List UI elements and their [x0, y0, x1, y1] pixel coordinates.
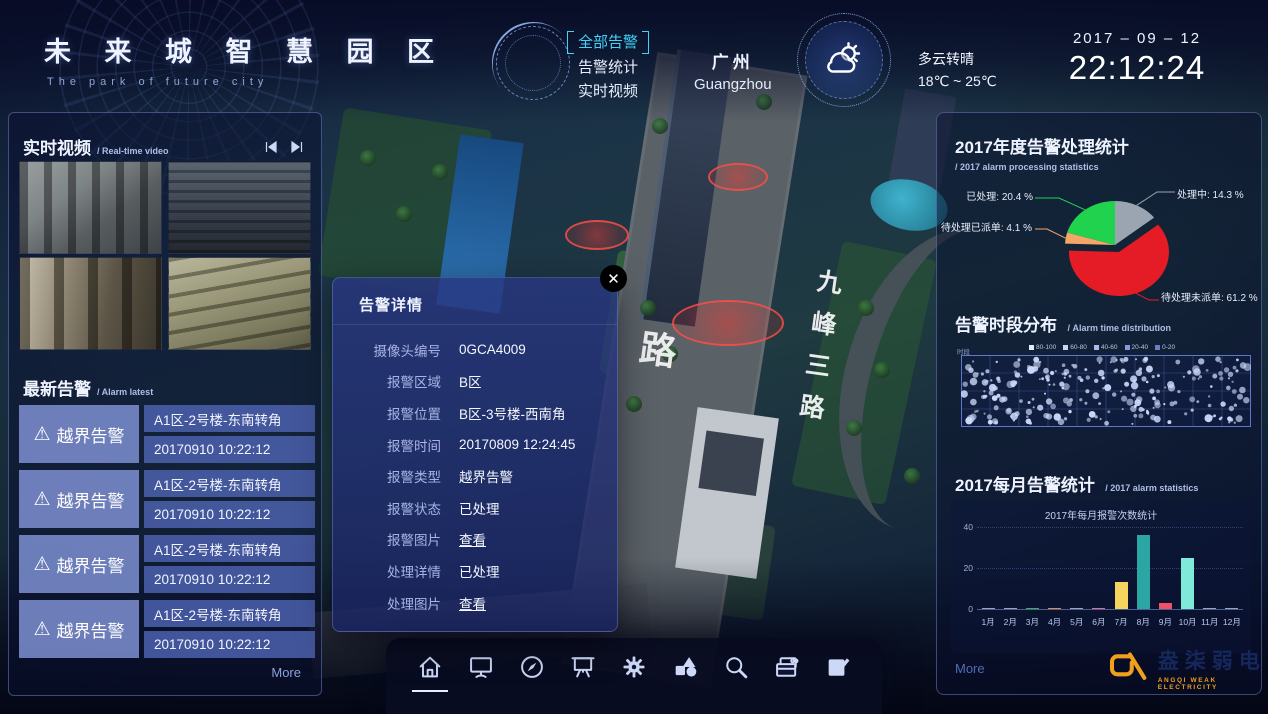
bar-section-subtitle: / 2017 alarm statistics [1105, 483, 1198, 493]
legend-item: 40-60 [1094, 344, 1118, 351]
nav-item-alarm-stats[interactable]: 告警统计 [578, 59, 647, 76]
field-value: 0GCA4009 [459, 342, 526, 357]
bar-gridline [977, 609, 1243, 610]
scatter-point [1189, 396, 1195, 402]
scatter-point [1064, 417, 1067, 420]
dashboard: 九峰三路 路 未 来 城 智 慧 园 区 The park of future … [0, 0, 1268, 714]
bar-xtick-label: 4月 [1044, 616, 1066, 628]
map-tree [626, 396, 642, 412]
scatter-point [1164, 386, 1166, 388]
scatter-point [999, 397, 1005, 403]
pie-label-pending-dispatched: 待处理已派单: 4.1 % [937, 219, 1032, 234]
divider [333, 324, 617, 325]
bar-section-title: 2017每月告警统计 [955, 476, 1095, 495]
scatter-point [1104, 421, 1109, 426]
projection-screen-icon[interactable] [568, 652, 598, 682]
alarm-list-item[interactable]: ⚠越界告警 A1区-2号楼-东南转角 20170910 10:22:12 [19, 470, 315, 528]
scatter-point [1130, 375, 1137, 382]
bar-xtick-label: 3月 [1021, 616, 1043, 628]
scatter-point [1094, 379, 1098, 383]
weather-text: 多云转晴 18℃ ~ 25℃ [918, 48, 997, 92]
scatter-point [1136, 396, 1142, 402]
city-block: 广州 Guangzhou [694, 48, 772, 93]
alarm-section-title: 最新告警 [23, 375, 91, 400]
bar [1225, 608, 1238, 609]
scatter-point [1037, 405, 1043, 411]
scatter-point [996, 361, 998, 363]
modal-field-row: 报警位置B区-3号楼-西南角 [333, 397, 617, 429]
scatter-point [1097, 356, 1103, 362]
field-label: 报警位置 [333, 403, 441, 423]
field-label: 报警状态 [333, 498, 441, 518]
scatter-point [1032, 398, 1035, 401]
modal-field-row: 报警状态已处理 [333, 492, 617, 524]
scatter-point [1175, 360, 1180, 365]
scatter-point [965, 417, 972, 424]
field-value: 已处理 [459, 498, 500, 518]
modal-title: 告警详情 [359, 294, 423, 315]
scatter-point [1234, 422, 1236, 424]
scatter-point [968, 368, 973, 373]
map-tree [874, 362, 890, 378]
scatter-point [1111, 356, 1118, 363]
alarm-time: 20170910 10:22:12 [144, 566, 315, 593]
scatter-point [1049, 384, 1051, 386]
scatter-point [1210, 385, 1213, 388]
legend-item: 60-80 [1063, 344, 1087, 351]
scatter-point [1115, 369, 1118, 372]
alarm-location: A1区-2号楼-东南转角 [144, 405, 315, 432]
right-panel-more-link[interactable]: More [955, 661, 985, 676]
alarm-location: A1区-2号楼-东南转角 [144, 470, 315, 497]
map-tree [640, 300, 656, 316]
scatter-point [1138, 413, 1143, 418]
monitor-icon[interactable] [466, 652, 496, 682]
modal-field-row: 报警类型越界告警 [333, 460, 617, 492]
scatter-point [1146, 366, 1153, 373]
bar-ytick-label: 0 [955, 604, 973, 614]
page-subtitle: The park of future city [44, 76, 447, 88]
video-section-title: 实时视频 [23, 134, 91, 159]
scatter-point [1067, 401, 1072, 406]
nav-item-all-alarms[interactable]: 全部告警 [569, 33, 647, 52]
scatter-point [1135, 358, 1137, 360]
alarm-section-header: 最新告警 / Alarm latest [23, 375, 153, 400]
main-nav: 全部告警 告警统计 实时视频 [578, 33, 647, 100]
map-tree [396, 206, 412, 222]
logo-text-cn: 盎柒弱电 [1158, 645, 1268, 675]
scatter-point [1220, 401, 1225, 406]
scatter-point [1236, 415, 1243, 422]
skip-previous-icon[interactable] [263, 140, 279, 154]
pie-leader-line [1035, 198, 1085, 210]
scatter-point [1121, 396, 1127, 402]
scatter-point [1041, 377, 1044, 380]
modal-fields: 摄像头编号0GCA4009报警区域B区报警位置B区-3号楼-西南角报警时间201… [333, 334, 617, 618]
bar [982, 608, 995, 609]
scatter-point [1170, 401, 1175, 406]
scatter-point [1013, 361, 1020, 368]
field-label: 报警时间 [333, 435, 441, 455]
scatter-point [983, 390, 985, 392]
scatter-point [1150, 415, 1156, 421]
page-title: 未 来 城 智 慧 园 区 [44, 30, 447, 69]
video-thumbnail[interactable] [168, 161, 311, 254]
modal-field-row: 报警时间20170809 12:24:45 [333, 429, 617, 461]
scatter-point [976, 410, 978, 412]
bar-xtick-label: 2月 [999, 616, 1021, 628]
legend-swatch-icon [1094, 345, 1099, 350]
alarm-list-item[interactable]: ⚠越界告警 A1区-2号楼-东南转角 20170910 10:22:12 [19, 535, 315, 593]
modal-field-row: 摄像头编号0GCA4009 [333, 334, 617, 366]
wallet-icon[interactable] [772, 652, 802, 682]
alert-zone[interactable] [565, 220, 629, 250]
city-name-en: Guangzhou [694, 76, 772, 93]
bar-xtick-label: 8月 [1132, 616, 1154, 628]
legend-swatch-icon [1029, 345, 1034, 350]
scatter-point [1131, 382, 1138, 389]
alarm-time: 20170910 10:22:12 [144, 436, 315, 463]
bar-gridline [977, 568, 1243, 569]
field-value: 越界告警 [459, 466, 513, 486]
video-thumbnail[interactable] [168, 257, 311, 350]
alarm-type-label: 越界告警 [57, 487, 125, 512]
scatter-point [1010, 413, 1018, 421]
scatter-point [1196, 400, 1199, 403]
scatter-point [1215, 356, 1221, 362]
scatter-point [1152, 397, 1156, 401]
scatter-point [1039, 378, 1041, 380]
scatter-point [1136, 370, 1142, 376]
pie-section-subtitle: / 2017 alarm processing statistics [955, 162, 1129, 172]
scatter-point [1079, 398, 1082, 401]
pie-section-header: 2017年度告警处理统计 / 2017 alarm processing sta… [955, 133, 1129, 172]
video-section-subtitle: / Real-time video [97, 146, 169, 156]
scatter-point [1019, 399, 1023, 403]
search-icon[interactable] [721, 652, 751, 682]
scatter-point [1233, 366, 1237, 370]
pie-leader-line [1035, 229, 1066, 238]
scatter-point [1184, 412, 1187, 415]
scatter-point [1095, 415, 1098, 418]
scatter-section-subtitle: / Alarm time distribution [1067, 323, 1171, 333]
pie-label-processed: 已处理: 20.4 % [947, 188, 1033, 203]
scatter-point [1139, 407, 1144, 412]
scatter-point [1092, 392, 1099, 399]
nav-item-realtime-video[interactable]: 实时视频 [578, 83, 647, 100]
bar-xtick-label: 5月 [1066, 616, 1088, 628]
home-icon[interactable] [415, 652, 445, 682]
scatter-point [1010, 380, 1016, 386]
scatter-point [1187, 370, 1191, 374]
right-panel: 2017年度告警处理统计 / 2017 alarm processing sta… [936, 112, 1262, 695]
alarm-list-item[interactable]: ⚠越界告警 A1区-2号楼-东南转角 20170910 10:22:12 [19, 600, 315, 658]
map-tree [360, 150, 376, 166]
scatter-point [1033, 366, 1039, 372]
scatter-point [1192, 365, 1200, 373]
bar [1181, 558, 1194, 609]
field-label: 报警类型 [333, 466, 441, 486]
pie-label-pending-undispatched: 待处理未派单: 61.2 % [1161, 289, 1258, 304]
edit-icon[interactable] [823, 652, 853, 682]
scatter-point [1220, 361, 1222, 363]
scatter-point [1104, 384, 1111, 391]
alarm-type-label: 越界告警 [57, 422, 125, 447]
scatter-point [1198, 378, 1200, 380]
scatter-point [990, 379, 992, 381]
scatter-point [1228, 421, 1230, 423]
scatter-point [1062, 363, 1066, 367]
gear-icon[interactable] [619, 652, 649, 682]
scatter-point [1063, 383, 1070, 390]
bar [1026, 608, 1039, 609]
scatter-point [1243, 397, 1249, 403]
scatter-point [1239, 387, 1246, 394]
scatter-point [1133, 414, 1137, 418]
scatter-point [1220, 417, 1222, 419]
video-thumbnail[interactable] [19, 257, 162, 350]
scatter-point [1213, 414, 1216, 417]
bar-xtick-label: 11月 [1199, 616, 1221, 628]
alarm-type-label: 越界告警 [57, 617, 125, 642]
scatter-chart [961, 355, 1251, 427]
scatter-point [1228, 377, 1230, 379]
scatter-point [1098, 402, 1101, 405]
skip-next-icon[interactable] [289, 140, 305, 154]
bar-xtick-label: 7月 [1110, 616, 1132, 628]
legend-item: 80-100 [1029, 344, 1056, 351]
bar [1159, 603, 1172, 609]
scatter-point [1167, 420, 1171, 424]
bottom-toolbar [386, 638, 882, 714]
field-value: 已处理 [459, 561, 500, 581]
scatter-point [1124, 382, 1129, 387]
bar-xtick-label: 12月 [1221, 616, 1243, 628]
alarm-time: 20170910 10:22:12 [144, 501, 315, 528]
scatter-point [1163, 403, 1165, 405]
weather-temp: 18℃ ~ 25℃ [918, 70, 997, 92]
scatter-point [1084, 368, 1087, 371]
legend-item: 0-20 [1155, 344, 1175, 351]
scatter-point [1044, 393, 1046, 395]
scatter-point [1177, 390, 1180, 393]
warning-icon: ⚠ [33, 425, 50, 444]
scatter-point [1127, 399, 1134, 406]
scatter-point [1046, 414, 1052, 420]
scatter-point [985, 369, 989, 373]
scatter-point [1014, 370, 1017, 373]
scatter-point [1146, 410, 1148, 412]
scatter-point [1149, 389, 1154, 394]
legend-swatch-icon [1155, 345, 1160, 350]
scatter-point [981, 395, 985, 399]
scatter-point [1131, 423, 1133, 425]
scatter-point [1157, 374, 1160, 377]
scatter-point [1086, 375, 1090, 379]
map-tree [652, 118, 668, 134]
scatter-point [1192, 377, 1196, 381]
bar-xtick-label: 1月 [977, 616, 999, 628]
date-label: 2017 – 09 – 12 [1052, 30, 1222, 47]
scatter-point [1183, 376, 1185, 378]
scatter-point [1089, 411, 1096, 418]
alarm-list-item[interactable]: ⚠越界告警 A1区-2号楼-东南转角 20170910 10:22:12 [19, 405, 315, 463]
scatter-point [1069, 375, 1072, 378]
scatter-point [972, 360, 974, 362]
scatter-point [1146, 381, 1149, 384]
pie-leader-line [1135, 293, 1159, 300]
close-icon[interactable]: ✕ [600, 265, 627, 292]
bar-xtick-label: 10月 [1177, 616, 1199, 628]
warning-icon: ⚠ [33, 555, 50, 574]
logo-text-en: ANGQI WEAK ELECTRICITY [1158, 677, 1268, 691]
angqi-logo-icon [1103, 646, 1150, 690]
field-value: 20170809 12:24:45 [459, 437, 575, 452]
scatter-point [1122, 408, 1124, 410]
warning-icon: ⚠ [33, 490, 50, 509]
footer-logo: 盎柒弱电 ANGQI WEAK ELECTRICITY [1103, 645, 1268, 691]
scatter-point [1227, 416, 1232, 421]
scatter-point [1237, 394, 1243, 400]
scatter-point [1208, 395, 1210, 397]
alarm-type-label: 越界告警 [57, 552, 125, 577]
scatter-point [1057, 415, 1059, 417]
scatter-point [1226, 386, 1231, 391]
scatter-point [1152, 375, 1155, 378]
pie-leader-line [1137, 192, 1175, 205]
scatter-point [1026, 419, 1032, 425]
scatter-point [1198, 358, 1204, 364]
field-label: 处理图片 [333, 593, 441, 613]
scatter-point [1064, 372, 1067, 375]
bar [1137, 535, 1150, 609]
scatter-point [977, 373, 979, 375]
scatter-point [1224, 367, 1229, 372]
scatter-point [1005, 408, 1011, 414]
scatter-point [1206, 369, 1209, 372]
alarm-list: ⚠越界告警 A1区-2号楼-东南转角 20170910 10:22:12 ⚠越界… [19, 405, 315, 658]
shapes-icon[interactable] [670, 652, 700, 682]
map-tree [432, 164, 448, 180]
scatter-point [1084, 402, 1087, 405]
bar [1203, 608, 1216, 609]
alarm-time: 20170910 10:22:12 [144, 631, 315, 658]
scatter-point [994, 405, 999, 410]
warning-icon: ⚠ [33, 620, 50, 639]
scatter-point [1228, 372, 1233, 377]
scatter-point [1141, 376, 1146, 381]
bar [1048, 608, 1061, 609]
scatter-point [982, 379, 989, 386]
scatter-point [1107, 410, 1110, 413]
scatter-point [1236, 359, 1239, 362]
field-value: B区-3号楼-西南角 [459, 403, 566, 423]
scatter-point [1154, 402, 1160, 408]
field-label: 处理详情 [333, 561, 441, 581]
scatter-point [963, 382, 968, 387]
video-thumbnail[interactable] [19, 161, 162, 254]
weather-condition: 多云转晴 [918, 48, 997, 70]
bar-ytick-label: 40 [955, 522, 973, 532]
time-label: 22:12:24 [1052, 49, 1222, 87]
compass-icon[interactable] [517, 652, 547, 682]
bar-ytick-label: 20 [955, 563, 973, 573]
pie-label-processing: 处理中: 14.3 % [1177, 186, 1244, 201]
scatter-point [1050, 371, 1054, 375]
scatter-point [1120, 390, 1122, 392]
scatter-point [1112, 392, 1116, 396]
scatter-point [1020, 376, 1022, 378]
alert-zone[interactable] [672, 300, 784, 346]
scatter-point [1208, 404, 1212, 408]
scatter-point [989, 384, 997, 392]
scatter-point [1058, 419, 1065, 426]
scatter-point [984, 413, 986, 415]
scatter-section-title: 告警时段分布 [955, 316, 1057, 335]
scatter-section-header: 告警时段分布 / Alarm time distribution [955, 311, 1171, 336]
scatter-point [1232, 389, 1237, 394]
modal-field-row: 处理详情已处理 [333, 555, 617, 587]
scatter-point [987, 414, 992, 419]
header: 未 来 城 智 慧 园 区 The park of future city 全部… [0, 0, 1268, 112]
left-panel-more-link[interactable]: More [271, 665, 301, 680]
alarm-location: A1区-2号楼-东南转角 [144, 600, 315, 627]
scatter-point [1234, 404, 1237, 407]
map-tree [858, 300, 874, 316]
scatter-point [989, 391, 994, 396]
scatter-point [1147, 413, 1149, 415]
scatter-point [1191, 409, 1194, 412]
field-value-link[interactable]: 查看 [459, 529, 486, 549]
scatter-point [1073, 364, 1078, 369]
clock-block: 2017 – 09 – 12 22:12:24 [1052, 30, 1222, 87]
scatter-point [1142, 358, 1147, 363]
scatter-point [1130, 406, 1136, 412]
scatter-point [1026, 409, 1032, 415]
scatter-point [997, 394, 1001, 398]
scatter-point [1231, 381, 1233, 383]
logo-text-block: 盎柒弱电 ANGQI WEAK ELECTRICITY [1158, 645, 1268, 691]
scatter-legend: 80-10060-8040-6020-400-20 [1029, 344, 1175, 351]
alert-zone[interactable] [708, 163, 768, 191]
scatter-point [996, 377, 1000, 381]
scatter-point [1033, 406, 1035, 408]
field-label: 报警图片 [333, 529, 441, 549]
field-value-link[interactable]: 查看 [459, 593, 486, 613]
scatter-point [1199, 375, 1202, 378]
field-value: B区 [459, 371, 482, 391]
scatter-point [1121, 369, 1126, 374]
scatter-point [1046, 378, 1050, 382]
scatter-point [1205, 414, 1213, 422]
scatter-point [1043, 368, 1049, 374]
scatter-point [1050, 404, 1056, 410]
bar-xtick-label: 9月 [1154, 616, 1176, 628]
legend-swatch-icon [1125, 345, 1130, 350]
left-panel: 实时视频 / Real-time video 最新告警 / Alarm late… [8, 112, 322, 696]
scatter-point [994, 421, 998, 425]
scatter-point [1235, 369, 1238, 372]
scatter-point [1156, 390, 1160, 394]
legend-item: 20-40 [1125, 344, 1149, 351]
scatter-point [970, 378, 978, 386]
scatter-point [1017, 358, 1020, 361]
legend-swatch-icon [1063, 345, 1068, 350]
scatter-point [1218, 371, 1223, 376]
scatter-point [1055, 370, 1057, 372]
scatter-point [1212, 374, 1217, 379]
scatter-point [1064, 377, 1066, 379]
